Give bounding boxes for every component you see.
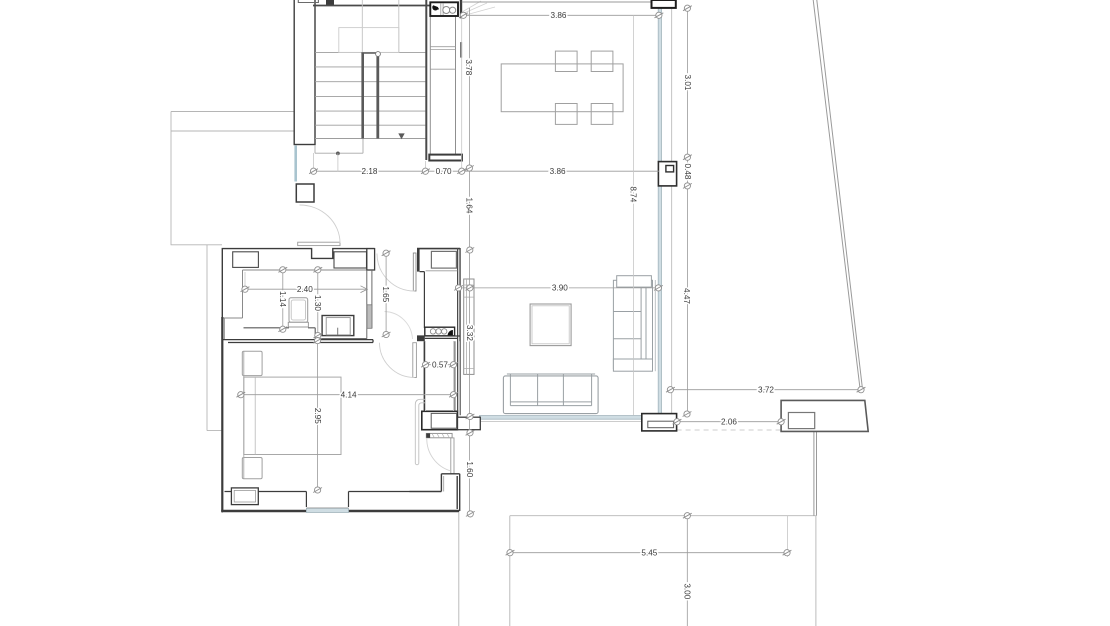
- svg-text:3.78: 3.78: [464, 59, 473, 75]
- svg-text:3.72: 3.72: [758, 386, 774, 395]
- svg-text:0.57: 0.57: [432, 361, 448, 370]
- svg-text:0.48: 0.48: [683, 164, 692, 180]
- svg-text:3.86: 3.86: [550, 167, 566, 176]
- svg-text:2.95: 2.95: [313, 408, 322, 424]
- svg-text:3.00: 3.00: [682, 583, 691, 599]
- svg-text:3.01: 3.01: [683, 75, 692, 91]
- svg-text:1.14: 1.14: [278, 291, 287, 307]
- svg-text:3.90: 3.90: [552, 284, 568, 293]
- svg-text:1.30: 1.30: [313, 295, 322, 311]
- svg-text:1.65: 1.65: [381, 286, 390, 302]
- svg-text:3.32: 3.32: [465, 325, 474, 341]
- svg-text:2.06: 2.06: [721, 418, 737, 427]
- svg-text:2.40: 2.40: [297, 285, 313, 294]
- svg-text:0.70: 0.70: [436, 167, 452, 176]
- svg-text:4.14: 4.14: [341, 391, 357, 400]
- svg-text:2.18: 2.18: [362, 167, 378, 176]
- svg-text:8.74: 8.74: [628, 186, 637, 202]
- svg-text:3.86: 3.86: [551, 11, 567, 20]
- svg-text:1.60: 1.60: [465, 461, 474, 477]
- svg-text:1.64: 1.64: [465, 198, 474, 214]
- svg-text:5.45: 5.45: [641, 549, 657, 558]
- svg-text:4.47: 4.47: [682, 288, 691, 304]
